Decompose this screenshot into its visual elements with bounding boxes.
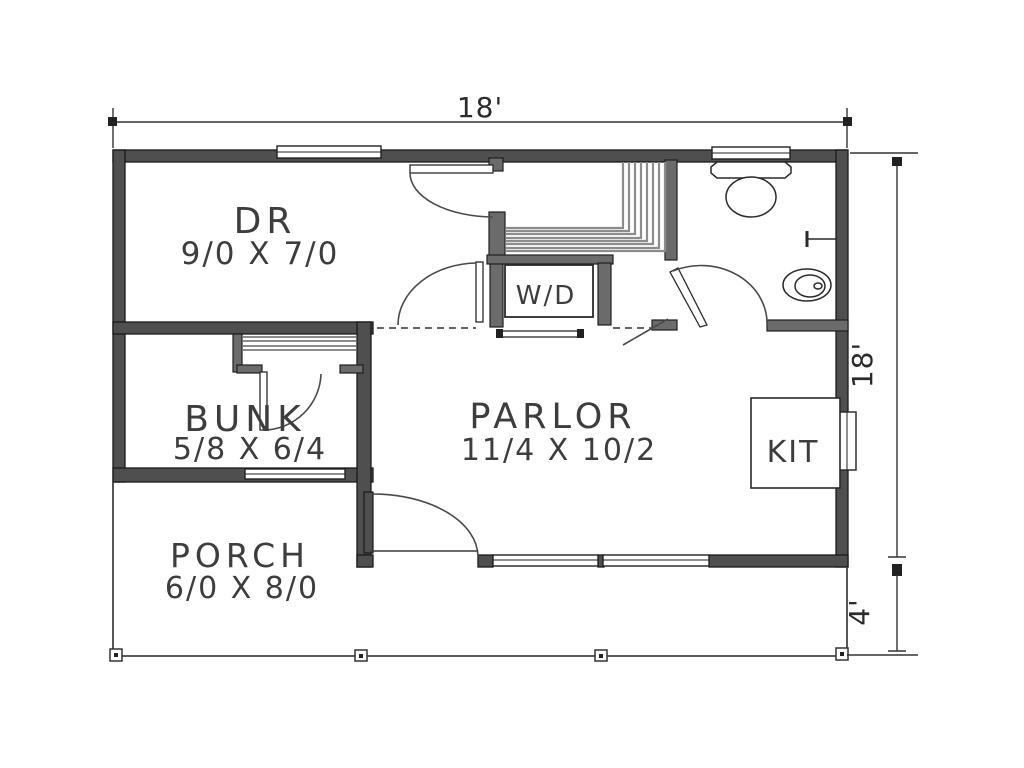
label-dr-dims: 9/0 X 7/0 [181,236,340,272]
wd-door-stop-left [496,329,503,338]
wd-door-stop-right [577,329,584,338]
wall-dr-bunk [113,322,373,334]
wall-closet-stub-left [237,365,262,373]
doors [260,165,767,556]
dim-label-right: 18' [846,342,879,388]
floor-plan-drawing: 18' 18' 4' DR 9/0 X 7/0 BUNK 5/8 X 6/4 P… [0,0,1024,768]
hall-door-swing [398,263,476,325]
wall-stair-dr [489,212,505,258]
stair-tread [506,162,623,228]
dr-door-swing [410,173,493,217]
wall-bottom-east [709,555,848,567]
wd-sliding-door [499,331,581,337]
label-kit: KIT [767,435,820,470]
front-door-swing [373,494,478,556]
dim-tick [843,117,852,126]
front-door-leaf [364,492,373,553]
bathroom-fixtures [711,162,836,301]
bath-door-swing-tick [623,319,668,345]
wall-wd-top [487,255,613,264]
dim-tick [892,564,902,576]
wall-bath-bottom [767,320,848,331]
stair-tread [506,162,635,234]
label-porch-dims: 6/0 X 8/0 [165,571,319,606]
wall-bottom-jamb [478,555,493,567]
toilet-tank [711,162,791,178]
porch-post-center [359,654,363,658]
dim-tick [892,157,902,166]
closet-shelves [243,337,356,350]
stair-tread [506,162,641,238]
dim-tick [108,117,117,126]
floor-plan-page: 18' 18' 4' DR 9/0 X 7/0 BUNK 5/8 X 6/4 P… [0,0,1024,768]
wall-wd-right [598,263,611,325]
porch-post-center [114,653,118,657]
wall-wd-left [490,258,503,327]
label-parlor: PARLOR [469,397,636,437]
stair-tread [506,162,647,241]
label-parlor-dims: 11/4 X 10/2 [461,433,657,468]
stairs [506,162,665,251]
wall-bath-left [665,160,677,260]
dr-door-leaf [410,165,493,173]
stair-tread [506,162,629,231]
label-bunk-dims: 5/8 X 6/4 [173,432,327,467]
label-wd: W/D [516,281,577,311]
porch-post-center [840,652,844,656]
toilet-bowl [726,177,776,217]
bath-door-leaf [670,268,707,327]
hall-door-leaf [476,262,483,322]
dim-label-porch: 4' [843,598,876,626]
sink-faucet [814,283,822,289]
wall-closet-stub-right [340,365,363,373]
wall-left [113,150,125,482]
wall-bottom-corner [357,555,373,567]
label-porch: PORCH [170,536,310,575]
porch-post-center [599,654,603,658]
dim-label-top: 18' [457,91,503,124]
